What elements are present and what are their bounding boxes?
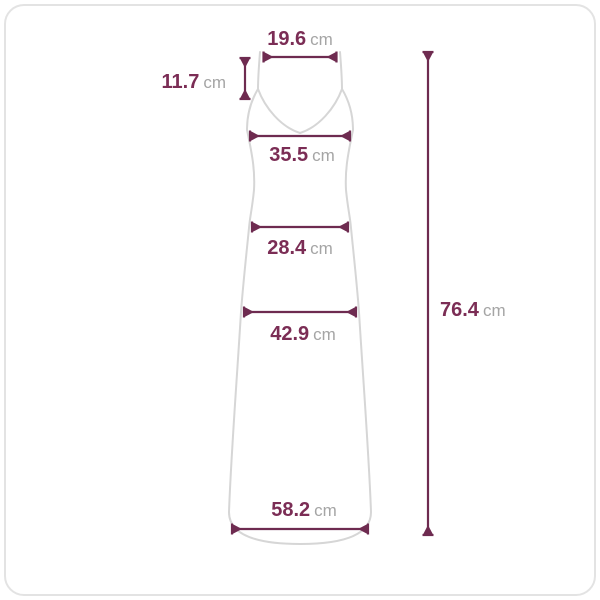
hem-width-unit: cm (314, 501, 337, 520)
bust-width-label: 35.5cm (269, 145, 335, 165)
strap-length-value: 11.7 (162, 71, 200, 93)
strap-length-dimension-line (240, 58, 251, 99)
hem-width-value: 58.2 (271, 499, 310, 521)
hem-width-dimension-line (232, 524, 368, 535)
hip-width-dimension-line (244, 307, 356, 318)
total-length-label: 76.4cm (440, 300, 506, 320)
bust-width-unit: cm (312, 146, 335, 165)
bust-width-value: 35.5 (269, 144, 308, 166)
top-width-label: 19.6cm (267, 29, 333, 49)
waist-width-dimension-line (252, 222, 348, 233)
strap-length-label: 11.7cm (162, 72, 227, 92)
total-length-unit: cm (483, 301, 506, 320)
dress-drawing (229, 52, 371, 544)
top-width-dimension-line (264, 52, 337, 63)
dress-silhouette (229, 52, 371, 544)
total-length-dimension-line (423, 52, 434, 535)
waist-width-value: 28.4 (267, 237, 306, 259)
waist-width-label: 28.4cm (267, 238, 333, 258)
hip-width-label: 42.9cm (270, 324, 336, 344)
hem-width-label: 58.2cm (271, 500, 337, 520)
strap-length-unit: cm (203, 73, 226, 92)
size-diagram: 19.6cm 11.7cm 35.5cm 28.4cm 42.9cm 58.2c… (0, 0, 600, 600)
hip-width-unit: cm (313, 325, 336, 344)
top-width-value: 19.6 (267, 28, 306, 50)
hip-width-value: 42.9 (270, 323, 309, 345)
top-width-unit: cm (310, 30, 333, 49)
v-neckline (258, 89, 342, 133)
total-length-value: 76.4 (440, 299, 479, 321)
waist-width-unit: cm (310, 239, 333, 258)
